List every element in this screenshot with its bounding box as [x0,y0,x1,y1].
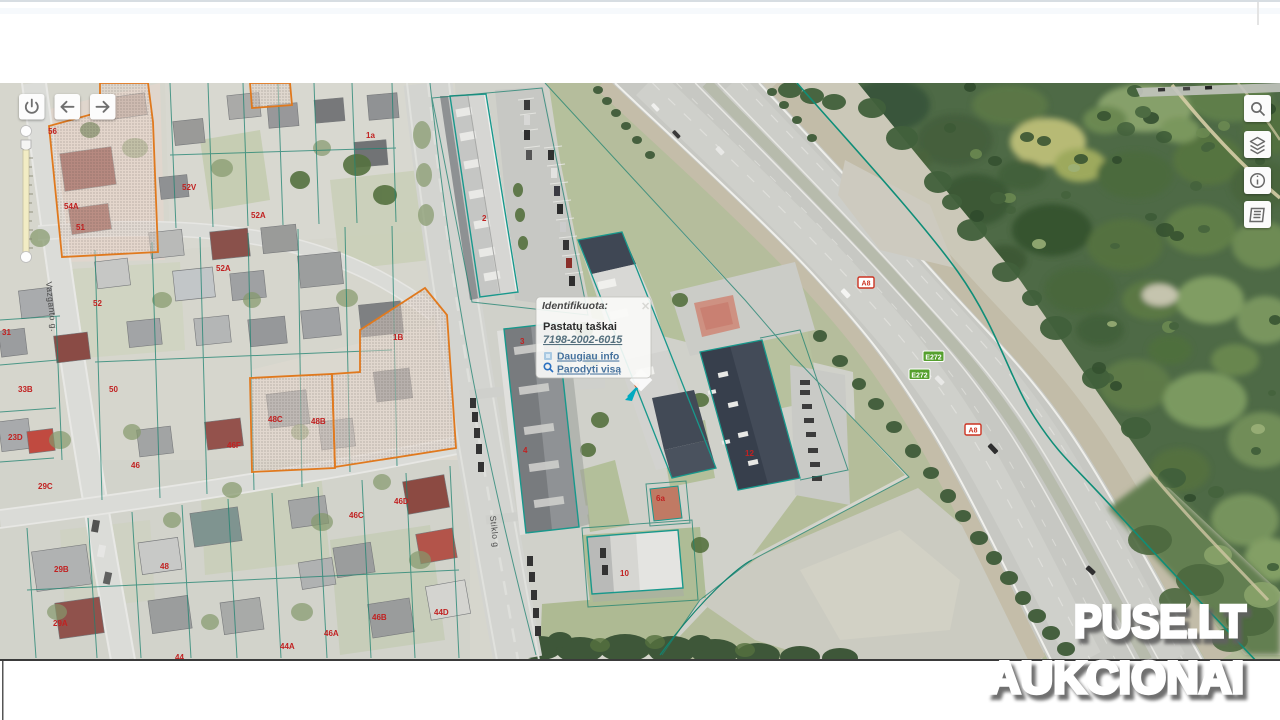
svg-text:Identifikuota:: Identifikuota: [542,300,608,312]
svg-text:1a: 1a [366,131,375,140]
svg-text:51: 51 [76,223,85,232]
svg-text:3: 3 [520,337,525,346]
svg-text:33B: 33B [18,385,33,394]
svg-text:2: 2 [482,214,487,223]
svg-text:Parodyti visą: Parodyti visą [557,365,621,376]
svg-text:54A: 54A [64,202,79,211]
svg-text:52V: 52V [182,183,197,192]
svg-text:52: 52 [93,299,102,308]
svg-text:6a: 6a [656,494,665,503]
svg-text:PUSE.LT: PUSE.LT [1074,596,1246,647]
svg-text:7198-2002-6015: 7198-2002-6015 [543,334,623,346]
svg-text:46D: 46D [394,497,409,506]
svg-text:A8: A8 [862,281,871,288]
svg-text:56: 56 [48,127,57,136]
svg-text:29B: 29B [54,565,69,574]
svg-text:Pastatų taškai: Pastatų taškai [543,321,617,333]
svg-text:46B: 46B [372,613,387,622]
svg-text:A8: A8 [969,428,978,435]
svg-text:E272: E272 [911,373,927,380]
svg-text:52A: 52A [251,211,266,220]
svg-text:29C: 29C [38,482,53,491]
svg-text:48C: 48C [268,415,283,424]
svg-text:46: 46 [131,461,140,470]
svg-text:52A: 52A [216,264,231,273]
svg-text:23D: 23D [8,433,23,442]
svg-text:E272: E272 [925,355,941,362]
svg-text:46A: 46A [324,629,339,638]
svg-text:10: 10 [620,569,629,578]
svg-text:31: 31 [2,328,11,337]
svg-text:29A: 29A [53,619,68,628]
svg-text:50: 50 [109,385,118,394]
svg-text:48: 48 [160,562,169,571]
svg-text:44A: 44A [280,642,295,651]
svg-text:48B: 48B [311,417,326,426]
svg-text:4: 4 [523,446,528,455]
svg-text:44D: 44D [434,608,449,617]
svg-text:46C: 46C [349,511,364,520]
svg-text:AUKCIONAI: AUKCIONAI [988,652,1244,703]
svg-text:46F: 46F [227,441,241,450]
svg-text:✕: ✕ [641,301,650,313]
svg-text:12: 12 [745,449,754,458]
svg-text:1B: 1B [393,333,403,342]
svg-text:Daugiau info: Daugiau info [557,352,619,363]
